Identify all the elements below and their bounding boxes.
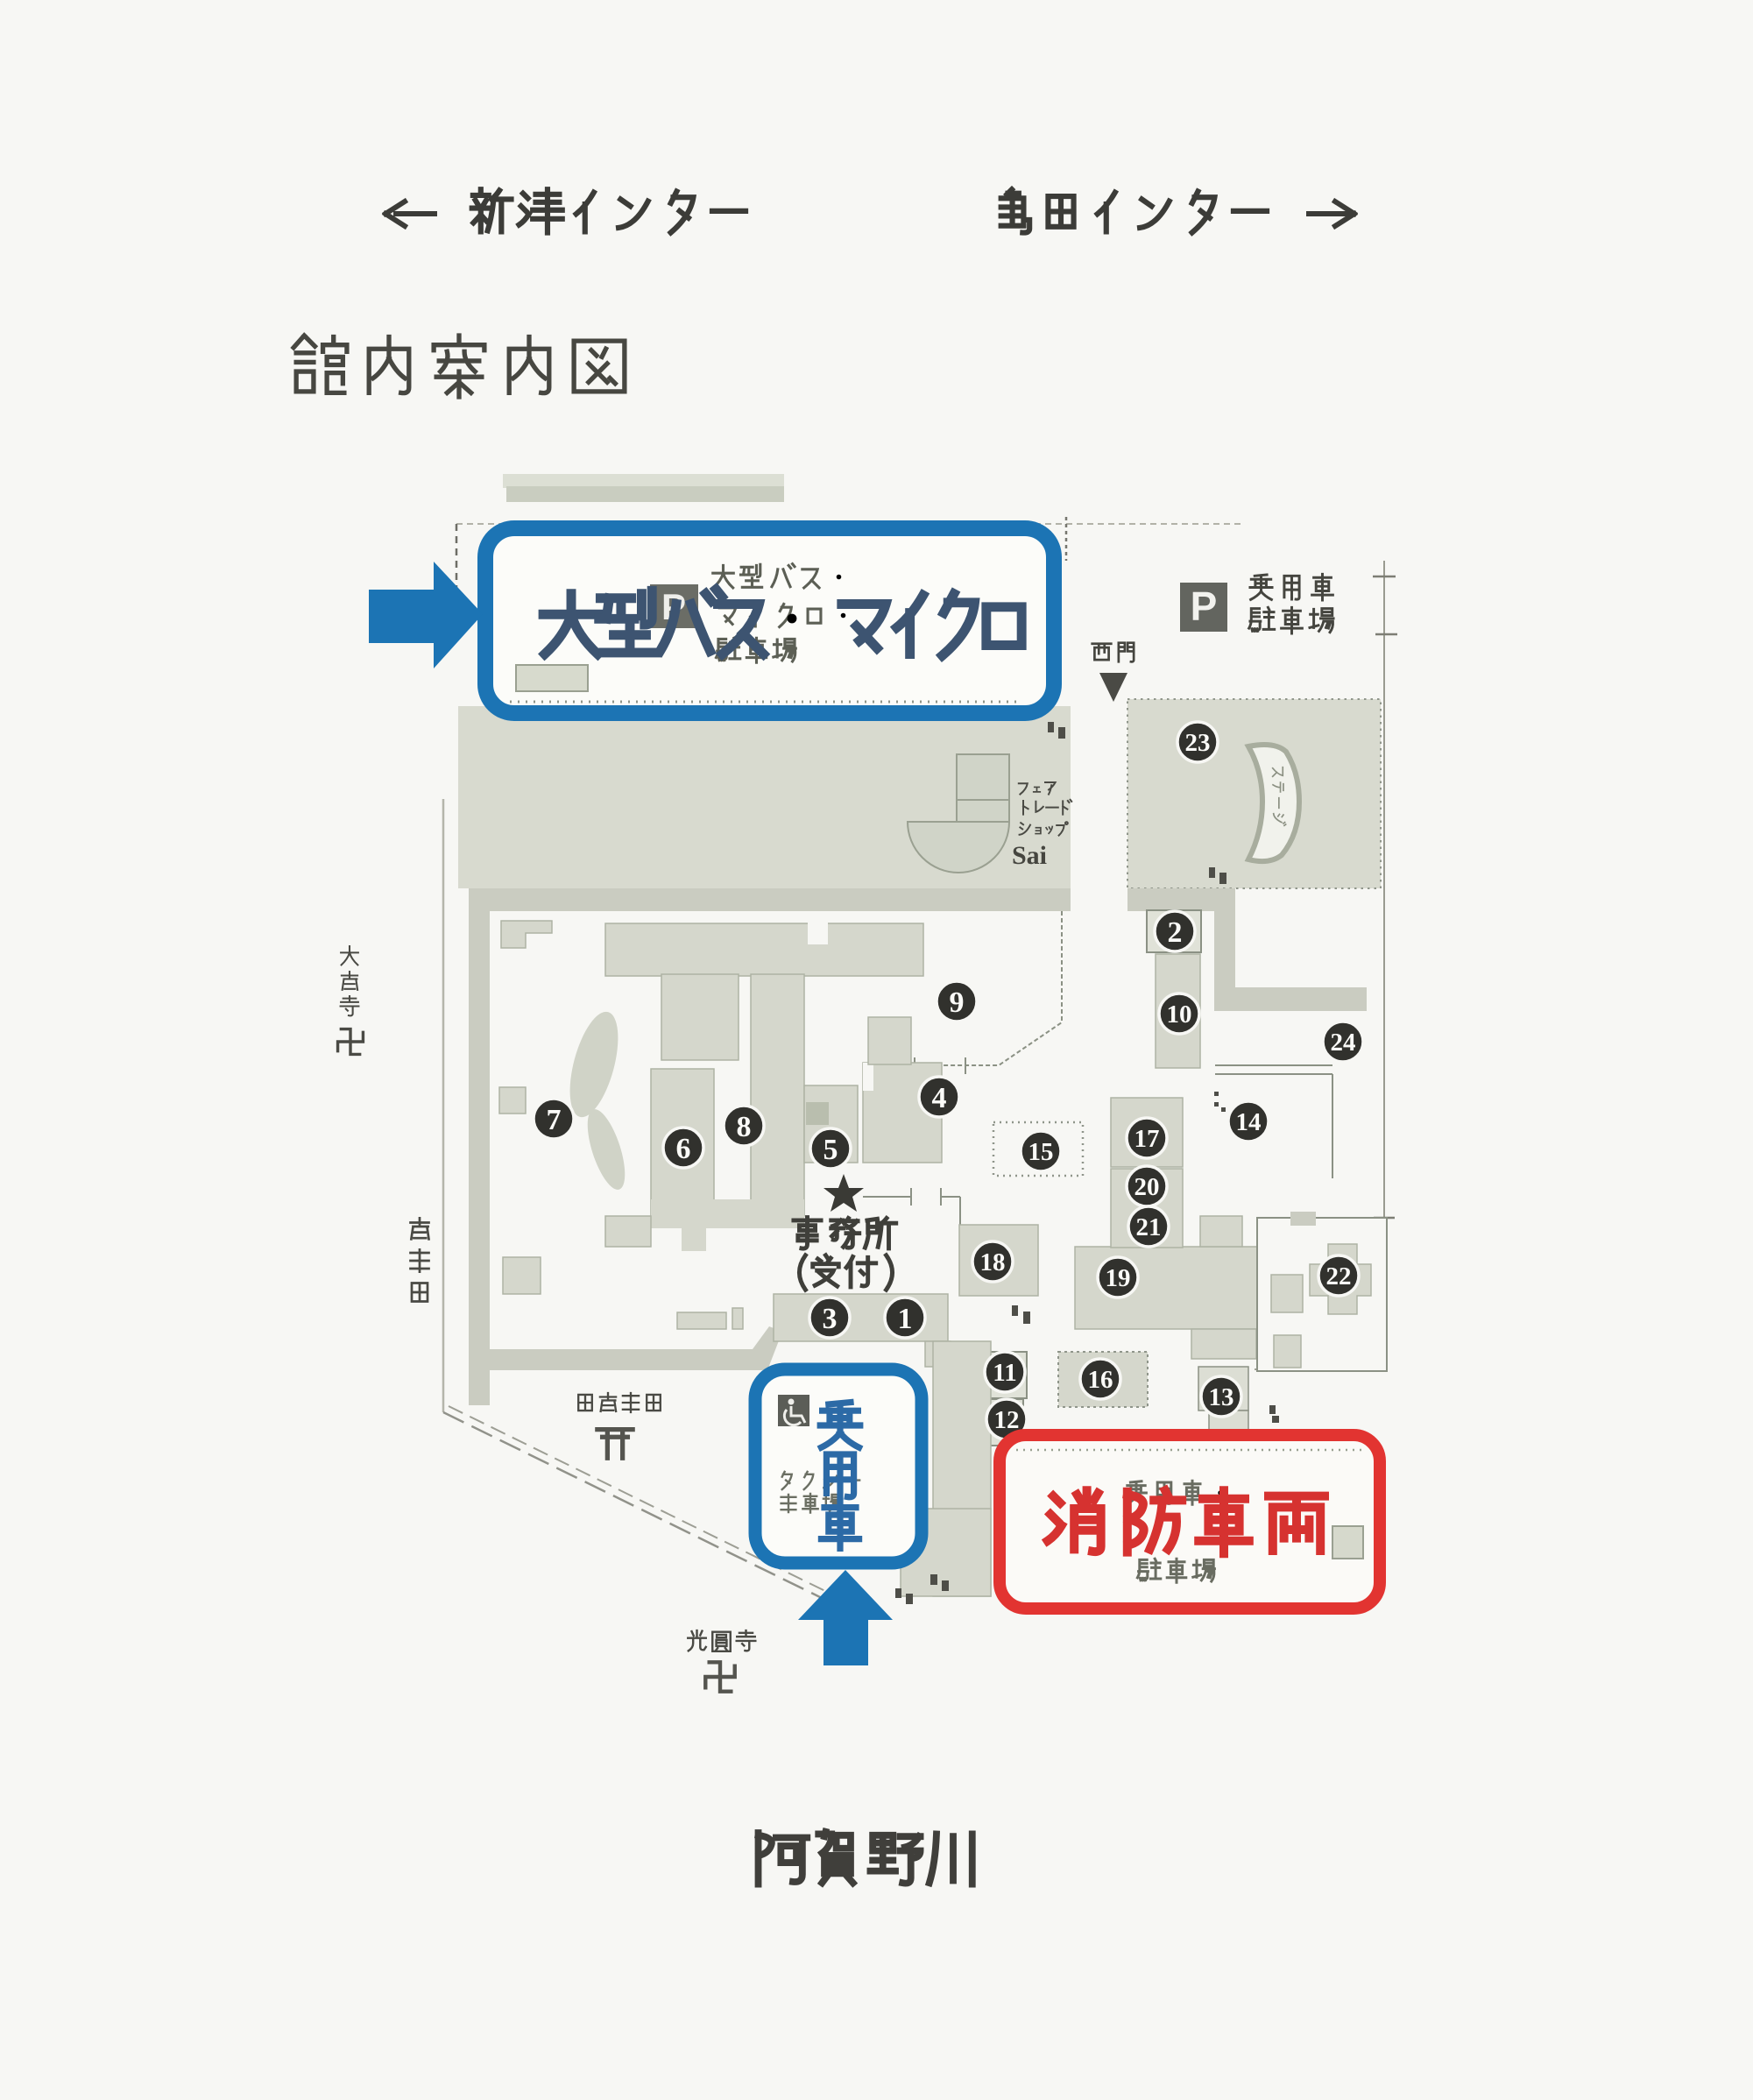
svg-text:17: 17	[1135, 1125, 1160, 1153]
svg-text:1: 1	[898, 1303, 913, 1335]
svg-text:7: 7	[547, 1104, 562, 1136]
svg-text:12: 12	[994, 1406, 1020, 1434]
svg-text:10: 10	[1167, 1001, 1192, 1029]
svg-text:Sai: Sai	[1012, 841, 1047, 870]
svg-text:11: 11	[993, 1359, 1016, 1387]
svg-text:4: 4	[932, 1082, 947, 1114]
svg-text:23: 23	[1185, 729, 1211, 757]
svg-text:8: 8	[737, 1111, 752, 1143]
svg-text:16: 16	[1088, 1366, 1113, 1394]
svg-text:20: 20	[1135, 1173, 1160, 1201]
svg-text:2: 2	[1168, 916, 1183, 949]
svg-text:14: 14	[1236, 1108, 1262, 1136]
svg-text:21: 21	[1136, 1213, 1162, 1241]
svg-text:15: 15	[1028, 1138, 1054, 1166]
svg-text:P: P	[1191, 583, 1218, 629]
svg-text:24: 24	[1331, 1029, 1356, 1057]
svg-text:18: 18	[980, 1248, 1006, 1276]
svg-text:3: 3	[823, 1303, 838, 1335]
svg-text:19: 19	[1106, 1264, 1131, 1292]
svg-text:9: 9	[950, 986, 965, 1019]
svg-text:5: 5	[823, 1134, 838, 1166]
svg-text:6: 6	[676, 1133, 691, 1165]
svg-text:13: 13	[1209, 1383, 1234, 1411]
svg-text:22: 22	[1326, 1262, 1352, 1290]
